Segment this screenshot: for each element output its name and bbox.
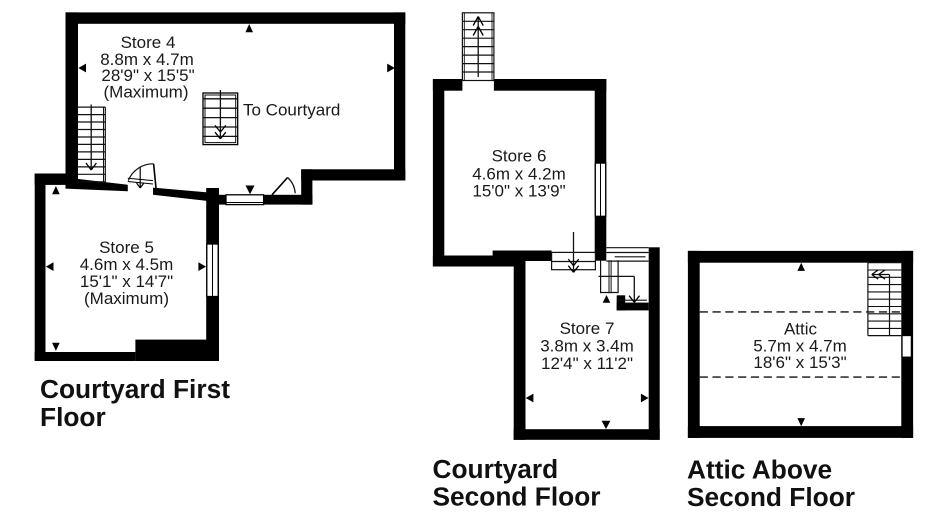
svg-text:(Maximum): (Maximum) [84,289,169,308]
svg-text:Courtyard: Courtyard [433,454,559,484]
svg-text:(Maximum): (Maximum) [104,83,189,102]
svg-text:Second Floor: Second Floor [687,482,855,512]
svg-text:Courtyard First: Courtyard First [40,374,230,404]
svg-text:Store 7: Store 7 [560,319,615,338]
svg-text:Second Floor: Second Floor [433,482,601,512]
svg-text:Store 6: Store 6 [492,147,547,166]
svg-text:15'0" x 13'9": 15'0" x 13'9" [472,182,565,201]
svg-text:18'6" x 15'3": 18'6" x 15'3" [753,353,846,372]
svg-text:Attic Above: Attic Above [687,454,832,484]
svg-text:3.8m x 3.4m: 3.8m x 3.4m [540,337,634,356]
svg-text:Floor: Floor [40,402,106,432]
svg-text:12'4" x 11'2": 12'4" x 11'2" [541,354,633,373]
svg-text:To Courtyard: To Courtyard [243,101,340,120]
